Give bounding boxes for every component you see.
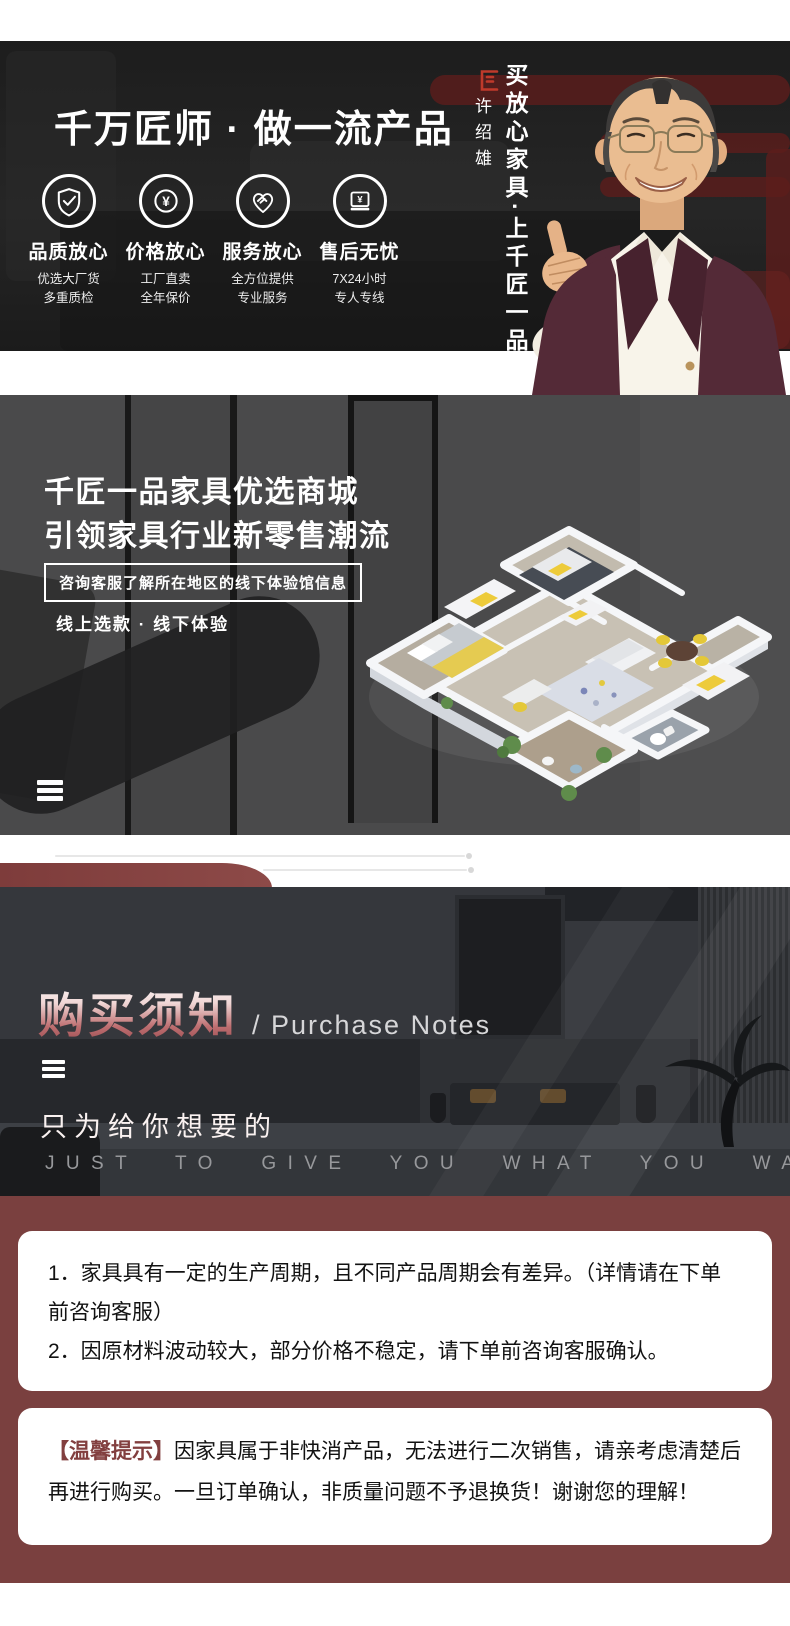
feature-title: 品质放心 (28, 237, 108, 264)
feature-title: 价格放心 (125, 237, 205, 264)
feature-desc: 优选大厂货 多重质检 (37, 270, 100, 308)
subtitle-en: JUST TO GIVE YOU WHAT YOU WANT (45, 1153, 790, 1175)
feature-desc: 7X24小时 专人专线 (332, 270, 386, 308)
warm-tip-card: 【温馨提示】因家具属于非快消产品，无法进行二次销售，请亲考虑清楚后再进行购买。一… (18, 1408, 772, 1545)
feature-service: 服务放心 全方位提供 专业服务 (214, 174, 311, 308)
menu-icon[interactable] (37, 780, 63, 801)
mall-tagline: 线上选款 · 线下体验 (56, 610, 229, 635)
menu-icon[interactable] (42, 1060, 65, 1078)
feature-aftersale: ¥ 售后无忧 7X24小时 专人专线 (311, 174, 408, 308)
divider-line (263, 869, 467, 871)
mall-section: 千匠一品家具优选商城 引领家具行业新零售潮流 咨询客服了解所在地区的线下体验馆信… (0, 395, 790, 835)
divider-dot (468, 867, 474, 873)
shield-check-icon (42, 174, 96, 228)
mall-title-line1: 千匠一品家具优选商城 (44, 467, 359, 511)
feature-title: 售后无忧 (319, 237, 399, 264)
title-en: / Purchase Notes (252, 1010, 491, 1046)
svg-text:¥: ¥ (162, 194, 170, 209)
divider-dot (466, 853, 472, 859)
mall-title-line2: 引领家具行业新零售潮流 (44, 511, 391, 555)
floorplan-3d-render (352, 437, 776, 821)
feature-quality: 品质放心 优选大厂货 多重质检 (20, 174, 117, 308)
subtitle-cn: 只为给你想要的 (40, 1105, 278, 1144)
production-notice-card: 1．家具具有一定的生产周期，且不同产品周期会有差异。（详情请在下单前咨询客服） … (18, 1231, 772, 1391)
yuan-circle-icon: ¥ (139, 174, 193, 228)
feature-desc: 工厂直卖 全年保价 (140, 270, 190, 308)
purchase-notes-section: 购买须知 / Purchase Notes 只为给你想要的 JUST TO GI… (0, 887, 790, 1196)
feature-price: ¥ 价格放心 工厂直卖 全年保价 (117, 174, 214, 308)
feature-desc: 全方位提供 专业服务 (231, 270, 294, 308)
feature-list: 品质放心 优选大厂货 多重质检 ¥ 价格放心 工厂直卖 全年保价 (20, 174, 430, 308)
endorser-photo (452, 60, 790, 395)
palm-tree-silhouette (640, 1007, 790, 1147)
notice-item-2: 2．因原材料波动较大，部分价格不稳定，请下单前咨询客服确认。 (48, 1333, 742, 1372)
notice-item-1: 1．家具具有一定的生产周期，且不同产品周期会有差异。（详情请在下单前咨询客服） (48, 1255, 742, 1333)
handshake-heart-icon (236, 174, 290, 228)
svg-text:¥: ¥ (357, 195, 363, 205)
notice-section: 1．家具具有一定的生产周期，且不同产品周期会有差异。（详情请在下单前咨询客服） … (0, 1196, 790, 1583)
bg-planter (430, 1093, 446, 1123)
warm-tip: 【温馨提示】因家具属于非快消产品，无法进行二次销售，请亲考虑清楚后再进行购买。一… (48, 1432, 742, 1514)
warm-tip-label: 【温馨提示】 (48, 1440, 174, 1463)
maroon-accent-tab (0, 863, 272, 888)
feature-title: 服务放心 (222, 237, 302, 264)
promo-page: 千万匠师 · 做一流产品 品质放心 优选大厂货 多重质检 (0, 0, 790, 1626)
title-cn: 购买须知 (38, 977, 238, 1046)
warranty-card-icon: ¥ (333, 174, 387, 228)
mall-notice-banner: 咨询客服了解所在地区的线下体验馆信息 (44, 563, 362, 602)
purchase-notes-title: 购买须知 / Purchase Notes (38, 977, 491, 1046)
hero-headline: 千万匠师 · 做一流产品 (54, 98, 454, 153)
divider-line (55, 855, 465, 857)
